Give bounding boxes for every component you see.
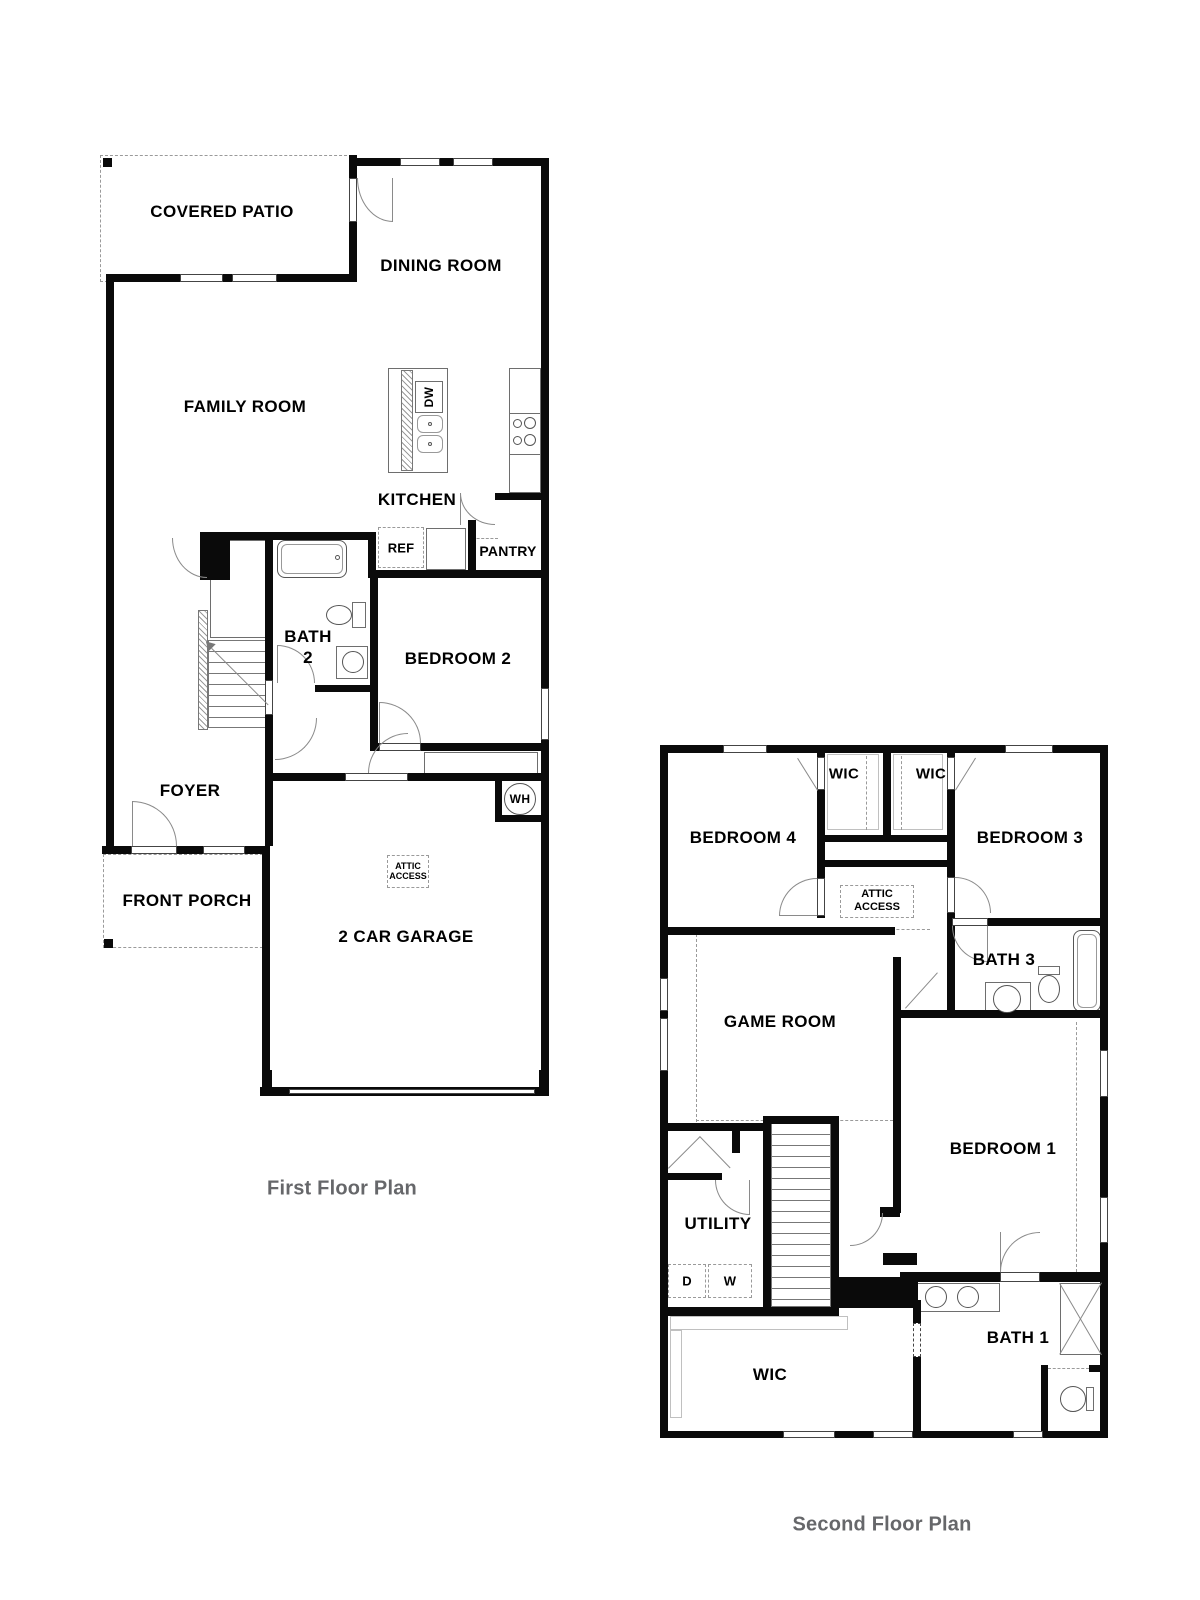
door-leaf <box>379 702 381 743</box>
door-arc <box>955 877 991 913</box>
counter <box>426 528 466 570</box>
door-opening <box>817 757 825 790</box>
patio-door-opening <box>349 178 357 222</box>
window <box>232 274 277 282</box>
washer-label: W <box>724 1274 736 1289</box>
room-label-pantry: PANTRY <box>479 543 536 559</box>
door-arc <box>357 178 393 222</box>
sink <box>993 985 1021 1013</box>
wall <box>880 1207 900 1217</box>
bath2-line2: 2 <box>303 648 313 667</box>
door-leaf <box>749 1180 751 1215</box>
room-label-wic-main: WIC <box>753 1365 787 1385</box>
attic-access-line1: ATTIC <box>395 861 421 871</box>
wall <box>539 1070 549 1087</box>
wall <box>262 846 270 1096</box>
wic-door-leaf <box>797 758 818 791</box>
wic-rod <box>901 756 903 830</box>
sink-drain <box>428 442 432 446</box>
room-label-bath1: BATH 1 <box>987 1328 1050 1348</box>
floor-plan-canvas: DW REF <box>0 0 1200 1600</box>
second-floor-title: Second Floor Plan <box>793 1514 972 1537</box>
wall <box>370 570 378 751</box>
wall <box>349 158 549 166</box>
wall <box>660 1307 839 1316</box>
attic-access-label: ATTIC ACCESS <box>854 888 900 914</box>
door-leaf <box>779 915 817 916</box>
ceiling-break <box>1076 1022 1078 1272</box>
wall <box>315 685 377 692</box>
attic-access-line2: ACCESS <box>389 871 427 881</box>
closet-bifold <box>668 1136 701 1169</box>
dishwasher-label: DW <box>422 387 436 408</box>
door-opening <box>265 680 273 715</box>
room-label-wic-left: WIC <box>829 766 859 783</box>
room-label-front-porch: FRONT PORCH <box>122 891 251 911</box>
room-label-bedroom1: BEDROOM 1 <box>950 1139 1057 1159</box>
wall <box>883 1253 917 1265</box>
window <box>1013 1431 1043 1438</box>
water-heater-label: WH <box>510 792 531 806</box>
wall <box>817 860 955 867</box>
attic-access-line1: ATTIC <box>861 888 893 900</box>
door-opening <box>947 757 955 790</box>
attic-access-line2: ACCESS <box>854 901 900 913</box>
wic-rod <box>866 756 868 830</box>
cased-opening <box>913 1323 921 1357</box>
ceiling-break <box>696 934 698 1122</box>
attic-access-label: ATTIC ACCESS <box>389 861 427 881</box>
toilet-tank <box>352 602 366 628</box>
island-wall <box>401 370 413 471</box>
bathtub-inner <box>281 544 343 574</box>
door-opening <box>131 846 177 854</box>
room-label-game-room: GAME ROOM <box>724 1012 836 1032</box>
stair-wall <box>198 610 208 730</box>
wall <box>262 1070 272 1087</box>
window <box>783 1431 835 1438</box>
burner <box>524 434 536 446</box>
sink-drain <box>428 422 432 426</box>
wall <box>817 835 955 842</box>
dryer-label: D <box>682 1274 692 1289</box>
door-opening <box>817 878 825 916</box>
door-arc <box>850 1213 883 1246</box>
closet-door-leaf <box>905 972 938 1008</box>
sink <box>342 651 364 673</box>
window <box>203 846 245 854</box>
room-label-covered-patio: COVERED PATIO <box>150 202 293 222</box>
wall <box>732 1131 740 1153</box>
door-opening <box>345 773 408 781</box>
sink <box>957 1286 979 1308</box>
window <box>453 158 493 166</box>
toilet-tank <box>1038 966 1060 975</box>
wall <box>913 1300 921 1431</box>
toilet-bowl <box>1060 1386 1086 1412</box>
wall <box>660 1173 722 1180</box>
first-floor-title: First Floor Plan <box>267 1178 417 1201</box>
wic-door-leaf <box>955 758 976 791</box>
tub-drain <box>335 555 340 560</box>
door-arc <box>715 1180 750 1215</box>
wall <box>883 752 891 838</box>
burner <box>513 419 522 428</box>
door-leaf <box>277 645 279 683</box>
window <box>180 274 223 282</box>
burner <box>513 436 522 445</box>
window <box>400 158 440 166</box>
closet-bifold <box>699 1136 730 1168</box>
door-leaf <box>392 178 394 222</box>
door-arc <box>275 718 317 760</box>
door-opening <box>952 918 988 926</box>
room-label-dining: DINING ROOM <box>380 256 502 276</box>
door-leaf <box>132 801 134 846</box>
room-label-foyer: FOYER <box>160 781 221 801</box>
door-opening <box>1000 1272 1040 1282</box>
wall <box>763 1116 771 1310</box>
wall <box>368 570 549 578</box>
wall <box>495 493 549 500</box>
patio-post <box>103 158 112 167</box>
wic-shelves <box>670 1330 682 1418</box>
wall <box>1041 1365 1048 1431</box>
toilet-tank <box>1086 1387 1094 1411</box>
room-label-wic-right: WIC <box>916 766 946 783</box>
room-label-bedroom3: BEDROOM 3 <box>977 828 1084 848</box>
wall <box>541 158 549 1096</box>
room-label-bath2: BATH 2 <box>284 626 332 668</box>
window <box>723 745 767 753</box>
wall <box>468 520 476 577</box>
wall <box>660 1123 771 1131</box>
refrigerator-label: REF <box>388 541 415 556</box>
door-arc <box>460 493 495 525</box>
cased-opening <box>1048 1368 1089 1369</box>
door-opening <box>947 877 955 913</box>
stairs <box>771 1123 831 1307</box>
window <box>1100 1050 1108 1097</box>
wall <box>495 781 502 819</box>
room-label-garage: 2 CAR GARAGE <box>338 927 473 947</box>
window <box>1100 1197 1108 1243</box>
room-label-bath3: BATH 3 <box>973 950 1036 970</box>
room-label-bedroom4: BEDROOM 4 <box>690 828 797 848</box>
room-label-utility: UTILITY <box>684 1214 751 1234</box>
window <box>660 1018 668 1071</box>
room-label-family: FAMILY ROOM <box>184 397 306 417</box>
door-arc <box>779 878 817 916</box>
porch-post <box>104 939 113 948</box>
door-leaf <box>1000 1232 1002 1272</box>
sink <box>925 1286 947 1308</box>
bathtub-inner <box>1077 934 1097 1008</box>
garage-door <box>289 1089 535 1094</box>
burner <box>524 417 536 429</box>
wic-shelves <box>670 1316 848 1330</box>
toilet-bowl <box>1038 975 1060 1003</box>
window <box>660 978 668 1011</box>
door-leaf <box>460 493 462 525</box>
bath2-line1: BATH <box>284 627 332 646</box>
wall <box>893 957 901 1213</box>
wall <box>106 274 114 846</box>
window <box>541 688 549 740</box>
wall <box>1089 1365 1108 1372</box>
front-door-arc <box>132 801 177 846</box>
wall <box>660 927 895 935</box>
door-arc <box>1000 1232 1040 1272</box>
window <box>1005 745 1053 753</box>
wall <box>660 745 668 1438</box>
wall <box>763 1116 839 1124</box>
window <box>873 1431 913 1438</box>
room-label-bedroom2: BEDROOM 2 <box>405 649 512 669</box>
wall <box>495 815 549 822</box>
door-arc <box>172 538 207 578</box>
room-label-kitchen: KITCHEN <box>378 490 456 510</box>
toilet-bowl <box>326 605 352 625</box>
